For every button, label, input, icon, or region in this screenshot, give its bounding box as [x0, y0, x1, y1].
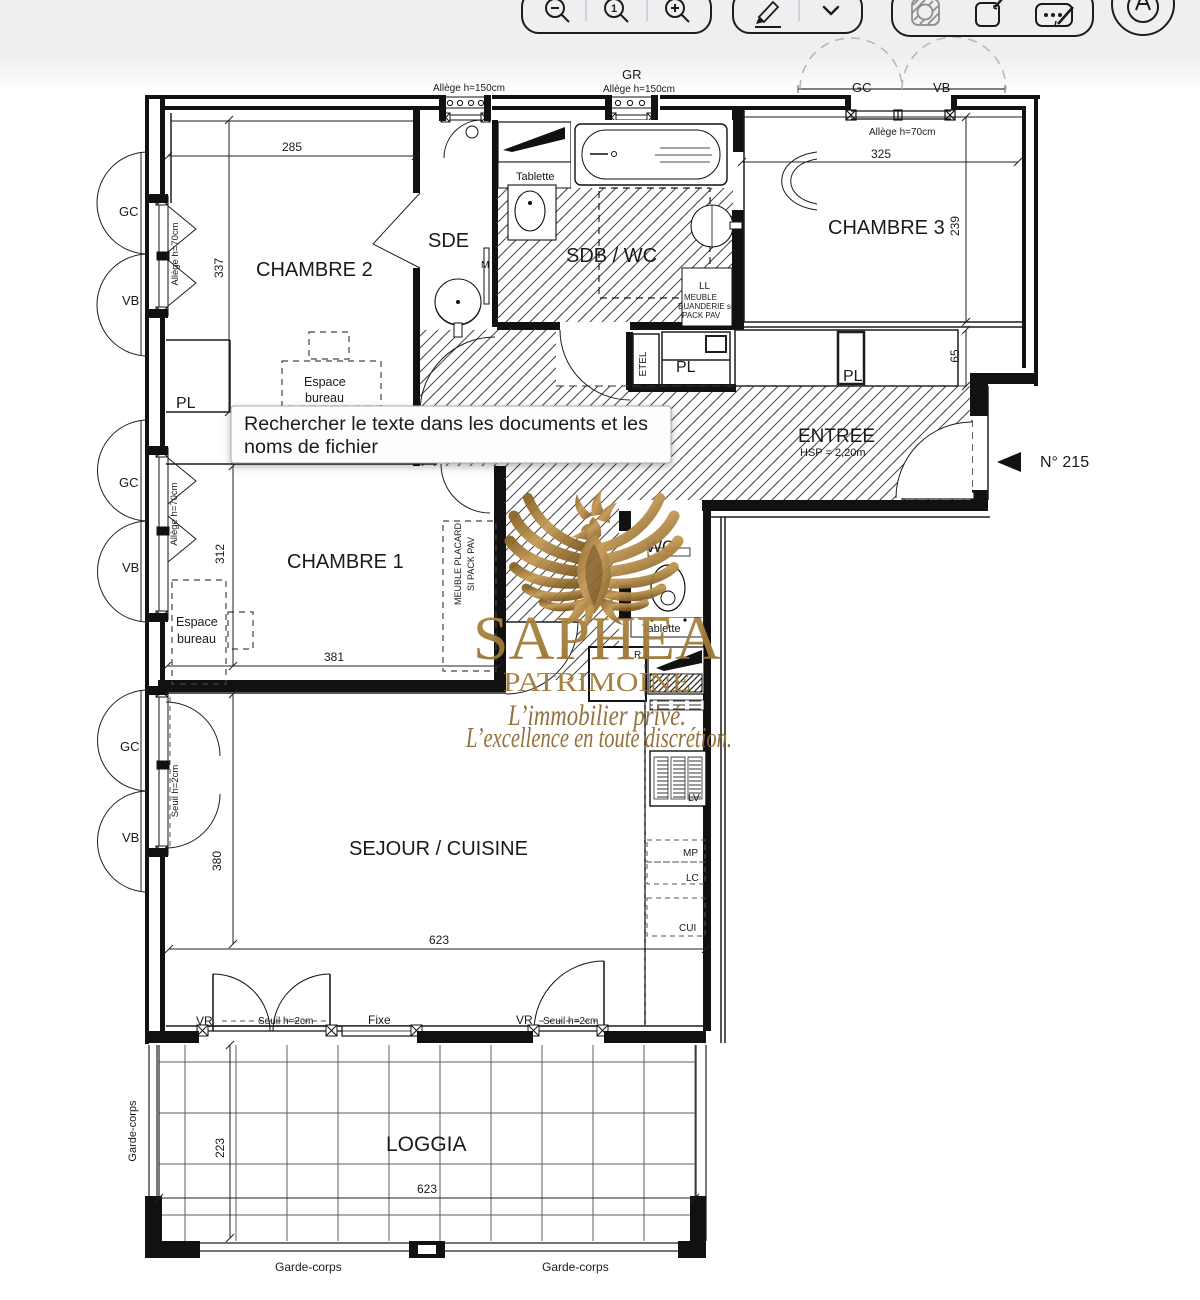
- svg-text:ENTREE: ENTREE: [798, 426, 875, 447]
- svg-text:CHAMBRE 1: CHAMBRE 1: [287, 551, 404, 573]
- svg-text:VR: VR: [516, 1013, 533, 1027]
- svg-text:337: 337: [212, 258, 226, 278]
- svg-text:HSP = 2,20m: HSP = 2,20m: [800, 447, 866, 459]
- svg-text:1: 1: [611, 3, 617, 15]
- svg-text:Espace: Espace: [304, 375, 346, 389]
- svg-text:VB: VB: [122, 293, 139, 308]
- svg-text:223: 223: [213, 1138, 227, 1158]
- svg-text:285: 285: [282, 140, 302, 154]
- svg-text:Allège h=150cm: Allège h=150cm: [433, 83, 505, 94]
- svg-text:SAPHEA: SAPHEA: [473, 605, 721, 673]
- svg-text:LV: LV: [688, 793, 700, 804]
- svg-text:VB: VB: [122, 560, 139, 575]
- svg-text:GR: GR: [622, 67, 642, 82]
- svg-text:Fixe: Fixe: [368, 1013, 391, 1027]
- svg-text:N° 215: N° 215: [1040, 454, 1089, 471]
- svg-text:bureau: bureau: [305, 391, 344, 405]
- svg-text:SDB / WC: SDB / WC: [566, 245, 657, 267]
- svg-text:VB: VB: [933, 80, 950, 95]
- svg-text:VR: VR: [196, 1014, 213, 1028]
- svg-text:PACK PAV: PACK PAV: [682, 311, 721, 320]
- svg-text:Garde-corps: Garde-corps: [127, 1100, 139, 1162]
- svg-text:BUANDERIE si: BUANDERIE si: [678, 302, 733, 311]
- svg-text:Allège h=70cm: Allège h=70cm: [169, 482, 180, 545]
- svg-text:CHAMBRE 2: CHAMBRE 2: [256, 259, 373, 281]
- svg-text:MEUBLE PLACARD: MEUBLE PLACARD: [453, 522, 463, 605]
- svg-text:325: 325: [871, 147, 891, 161]
- svg-text:PL: PL: [676, 359, 696, 376]
- svg-text:Allège h=150cm: Allège h=150cm: [603, 84, 675, 95]
- svg-text:SI PACK PAV: SI PACK PAV: [466, 537, 476, 591]
- svg-text:GC: GC: [120, 739, 140, 754]
- svg-text:312: 312: [213, 544, 227, 564]
- svg-text:Allège h=70cm: Allège h=70cm: [869, 127, 935, 138]
- svg-text:CUI: CUI: [679, 923, 696, 934]
- svg-text:LC: LC: [686, 873, 699, 884]
- svg-text:239: 239: [948, 216, 962, 236]
- svg-text:623: 623: [429, 933, 449, 947]
- svg-text:SEJOUR / CUISINE: SEJOUR / CUISINE: [349, 838, 528, 860]
- svg-text:PL: PL: [176, 395, 196, 412]
- svg-text:bureau: bureau: [177, 632, 216, 646]
- svg-text:Espace: Espace: [176, 615, 218, 629]
- svg-text:381: 381: [324, 650, 344, 664]
- svg-text:Garde-corps: Garde-corps: [542, 1260, 609, 1274]
- svg-text:GC: GC: [119, 475, 139, 490]
- svg-text:MP: MP: [683, 848, 698, 859]
- svg-text:VB: VB: [122, 830, 139, 845]
- svg-text:noms de fichier: noms de fichier: [244, 437, 379, 458]
- svg-text:Allège h=70cm: Allège h=70cm: [170, 222, 181, 285]
- svg-text:Tablette: Tablette: [516, 171, 555, 183]
- svg-text:LOGGIA: LOGGIA: [386, 1133, 467, 1156]
- svg-text:LL: LL: [699, 281, 711, 292]
- svg-text:Rechercher le texte dans les d: Rechercher le texte dans les documents e…: [244, 414, 648, 435]
- svg-text:380: 380: [210, 851, 224, 871]
- svg-text:M: M: [481, 260, 489, 271]
- svg-text:GC: GC: [852, 80, 872, 95]
- svg-text:PL: PL: [843, 368, 863, 385]
- svg-text:Seuil h=2cm: Seuil h=2cm: [170, 765, 181, 818]
- svg-text:Seuil h=2cm: Seuil h=2cm: [258, 1016, 313, 1027]
- svg-text:MEUBLE: MEUBLE: [684, 293, 717, 302]
- svg-text:GC: GC: [119, 204, 139, 219]
- svg-text:Seuil h=2cm: Seuil h=2cm: [543, 1016, 598, 1027]
- svg-text:PATRIMOINE: PATRIMOINE: [503, 667, 691, 697]
- svg-text:Garde-corps: Garde-corps: [275, 1260, 342, 1274]
- svg-text:CHAMBRE 3: CHAMBRE 3: [828, 217, 945, 239]
- svg-text:SDE: SDE: [428, 230, 469, 252]
- svg-text:623: 623: [417, 1182, 437, 1196]
- svg-text:L’excellence en toute discréti: L’excellence en toute discrétion.: [465, 722, 732, 754]
- svg-text:ETEL: ETEL: [638, 351, 649, 376]
- svg-text:65: 65: [948, 349, 962, 363]
